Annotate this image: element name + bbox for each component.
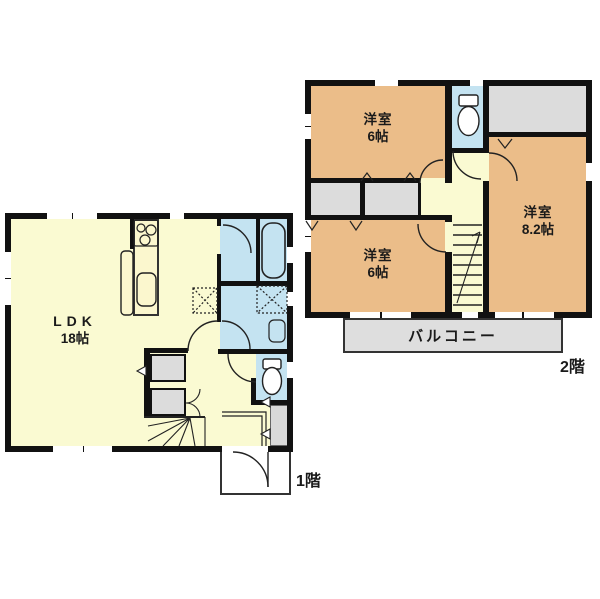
room-size: 18帖 (39, 331, 111, 348)
room-label-ldk: LDK 18帖 (39, 313, 111, 347)
window (5, 252, 11, 278)
window (586, 163, 592, 181)
balcony: バルコニー (343, 318, 563, 353)
window (305, 114, 311, 126)
room-label-bedroom-top-left: 洋室 6帖 (342, 112, 414, 146)
window (53, 446, 83, 452)
balcony-door (495, 312, 522, 318)
room-size: 6帖 (342, 129, 414, 146)
balcony-door (462, 312, 478, 318)
balcony-door (524, 312, 554, 318)
room-name: 洋室 (342, 248, 414, 265)
entry-door-opening (222, 446, 268, 452)
balcony-door (350, 312, 380, 318)
room-name: 洋室 (502, 205, 574, 222)
window (305, 127, 311, 139)
window (287, 247, 293, 263)
balcony-door (382, 312, 411, 318)
floor1-label: 1階 (296, 467, 321, 491)
room-size: 6帖 (342, 265, 414, 282)
window (287, 292, 293, 306)
window (305, 237, 311, 252)
floor2-label: 2階 (560, 353, 585, 377)
entry-porch (220, 449, 291, 495)
window (375, 80, 398, 86)
room-label-bedroom-bottom-left: 洋室 6帖 (342, 248, 414, 282)
room-size: 8.2帖 (502, 222, 574, 239)
window (73, 213, 97, 219)
floor-plan-canvas: バルコニー (0, 0, 600, 599)
window (470, 80, 483, 86)
balcony-label: バルコニー (408, 325, 498, 346)
room-label-bedroom-right: 洋室 8.2帖 (502, 205, 574, 239)
window (287, 362, 293, 378)
window (305, 220, 311, 236)
room-name: LDK (39, 313, 111, 331)
room-name: 洋室 (342, 112, 414, 129)
window (170, 213, 184, 219)
window (47, 213, 72, 219)
window (84, 446, 112, 452)
window (5, 279, 11, 305)
